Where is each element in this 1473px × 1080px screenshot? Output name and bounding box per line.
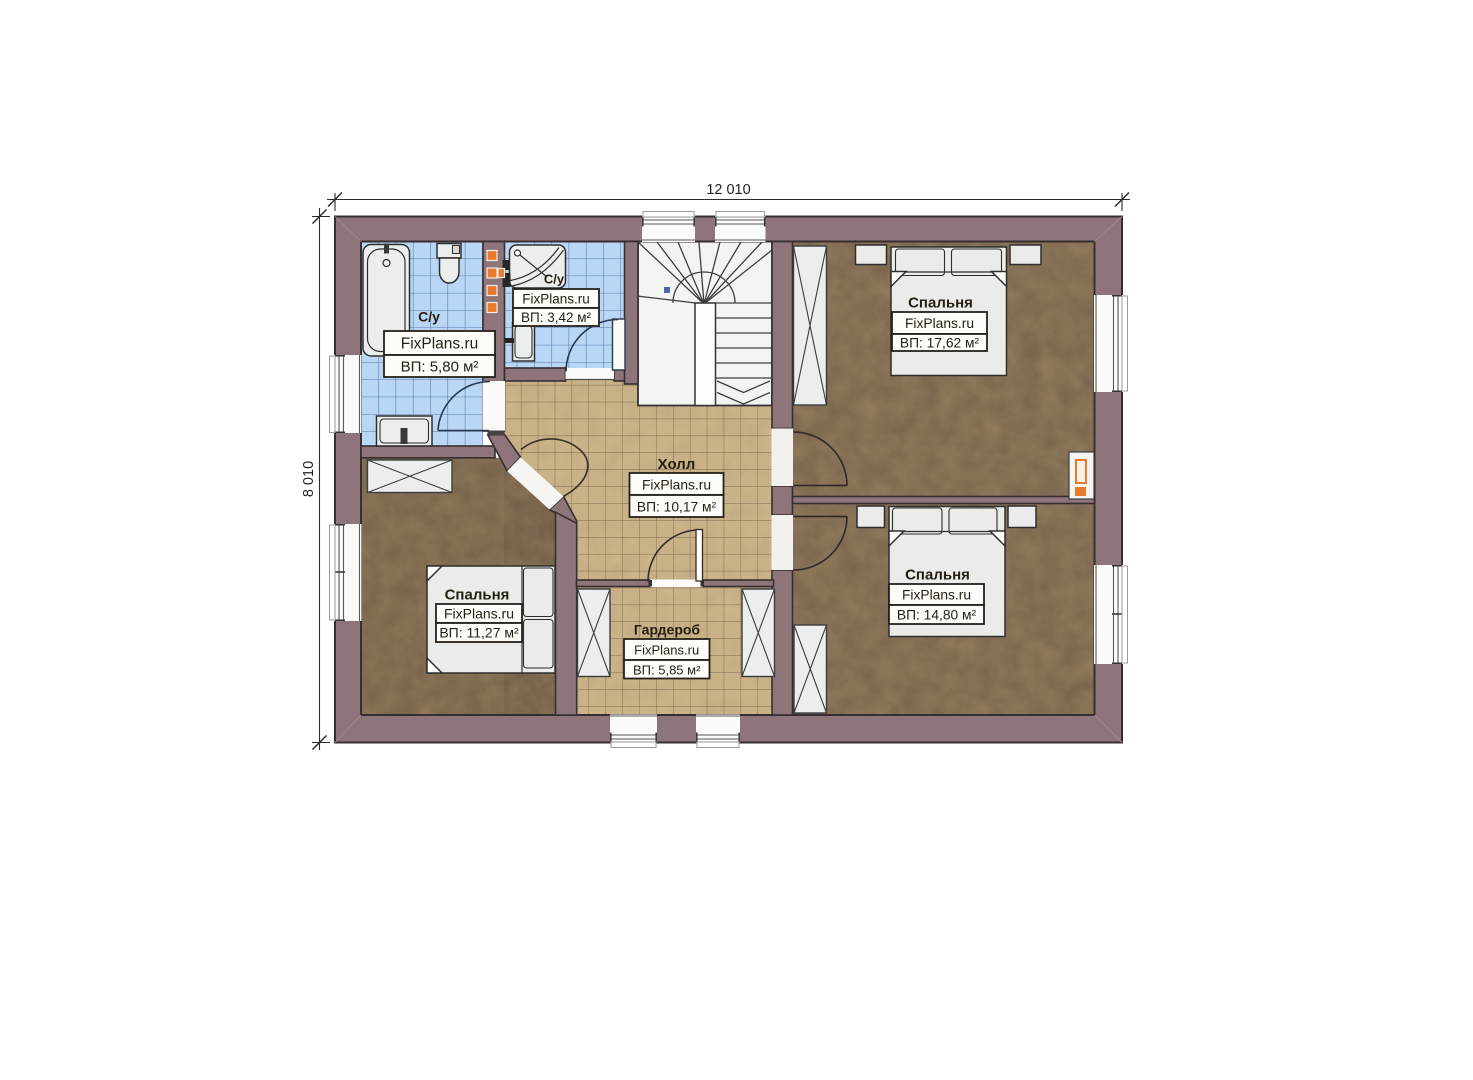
svg-text:FixPlans.ru: FixPlans.ru xyxy=(902,588,971,603)
svg-text:12 010: 12 010 xyxy=(706,182,750,198)
svg-text:Спальня: Спальня xyxy=(905,567,970,584)
svg-text:FixPlans.ru: FixPlans.ru xyxy=(634,643,699,658)
svg-text:ВП: 17,62 м²: ВП: 17,62 м² xyxy=(900,336,980,351)
svg-text:Спальня: Спальня xyxy=(908,295,973,312)
svg-text:ВП: 11,27 м²: ВП: 11,27 м² xyxy=(439,625,519,641)
svg-text:FixPlans.ru: FixPlans.ru xyxy=(905,316,974,331)
svg-text:Холл: Холл xyxy=(658,456,696,473)
svg-text:8 010: 8 010 xyxy=(301,461,317,497)
svg-text:ВП: 14,80 м²: ВП: 14,80 м² xyxy=(897,608,977,623)
svg-text:С/у: С/у xyxy=(544,272,565,287)
svg-text:ВП: 3,42 м²: ВП: 3,42 м² xyxy=(521,310,592,325)
svg-text:ВП: 10,17 м²: ВП: 10,17 м² xyxy=(637,500,717,515)
svg-text:FixPlans.ru: FixPlans.ru xyxy=(522,292,590,307)
svg-text:FixPlans.ru: FixPlans.ru xyxy=(444,606,514,622)
svg-text:FixPlans.ru: FixPlans.ru xyxy=(401,336,479,353)
svg-text:С/у: С/у xyxy=(418,309,440,325)
svg-text:FixPlans.ru: FixPlans.ru xyxy=(642,478,711,493)
svg-text:Спальня: Спальня xyxy=(445,587,510,604)
svg-text:Гардероб: Гардероб xyxy=(634,622,701,638)
svg-text:ВП: 5,85 м²: ВП: 5,85 м² xyxy=(633,663,701,678)
svg-text:ВП: 5,80 м²: ВП: 5,80 м² xyxy=(401,359,479,376)
